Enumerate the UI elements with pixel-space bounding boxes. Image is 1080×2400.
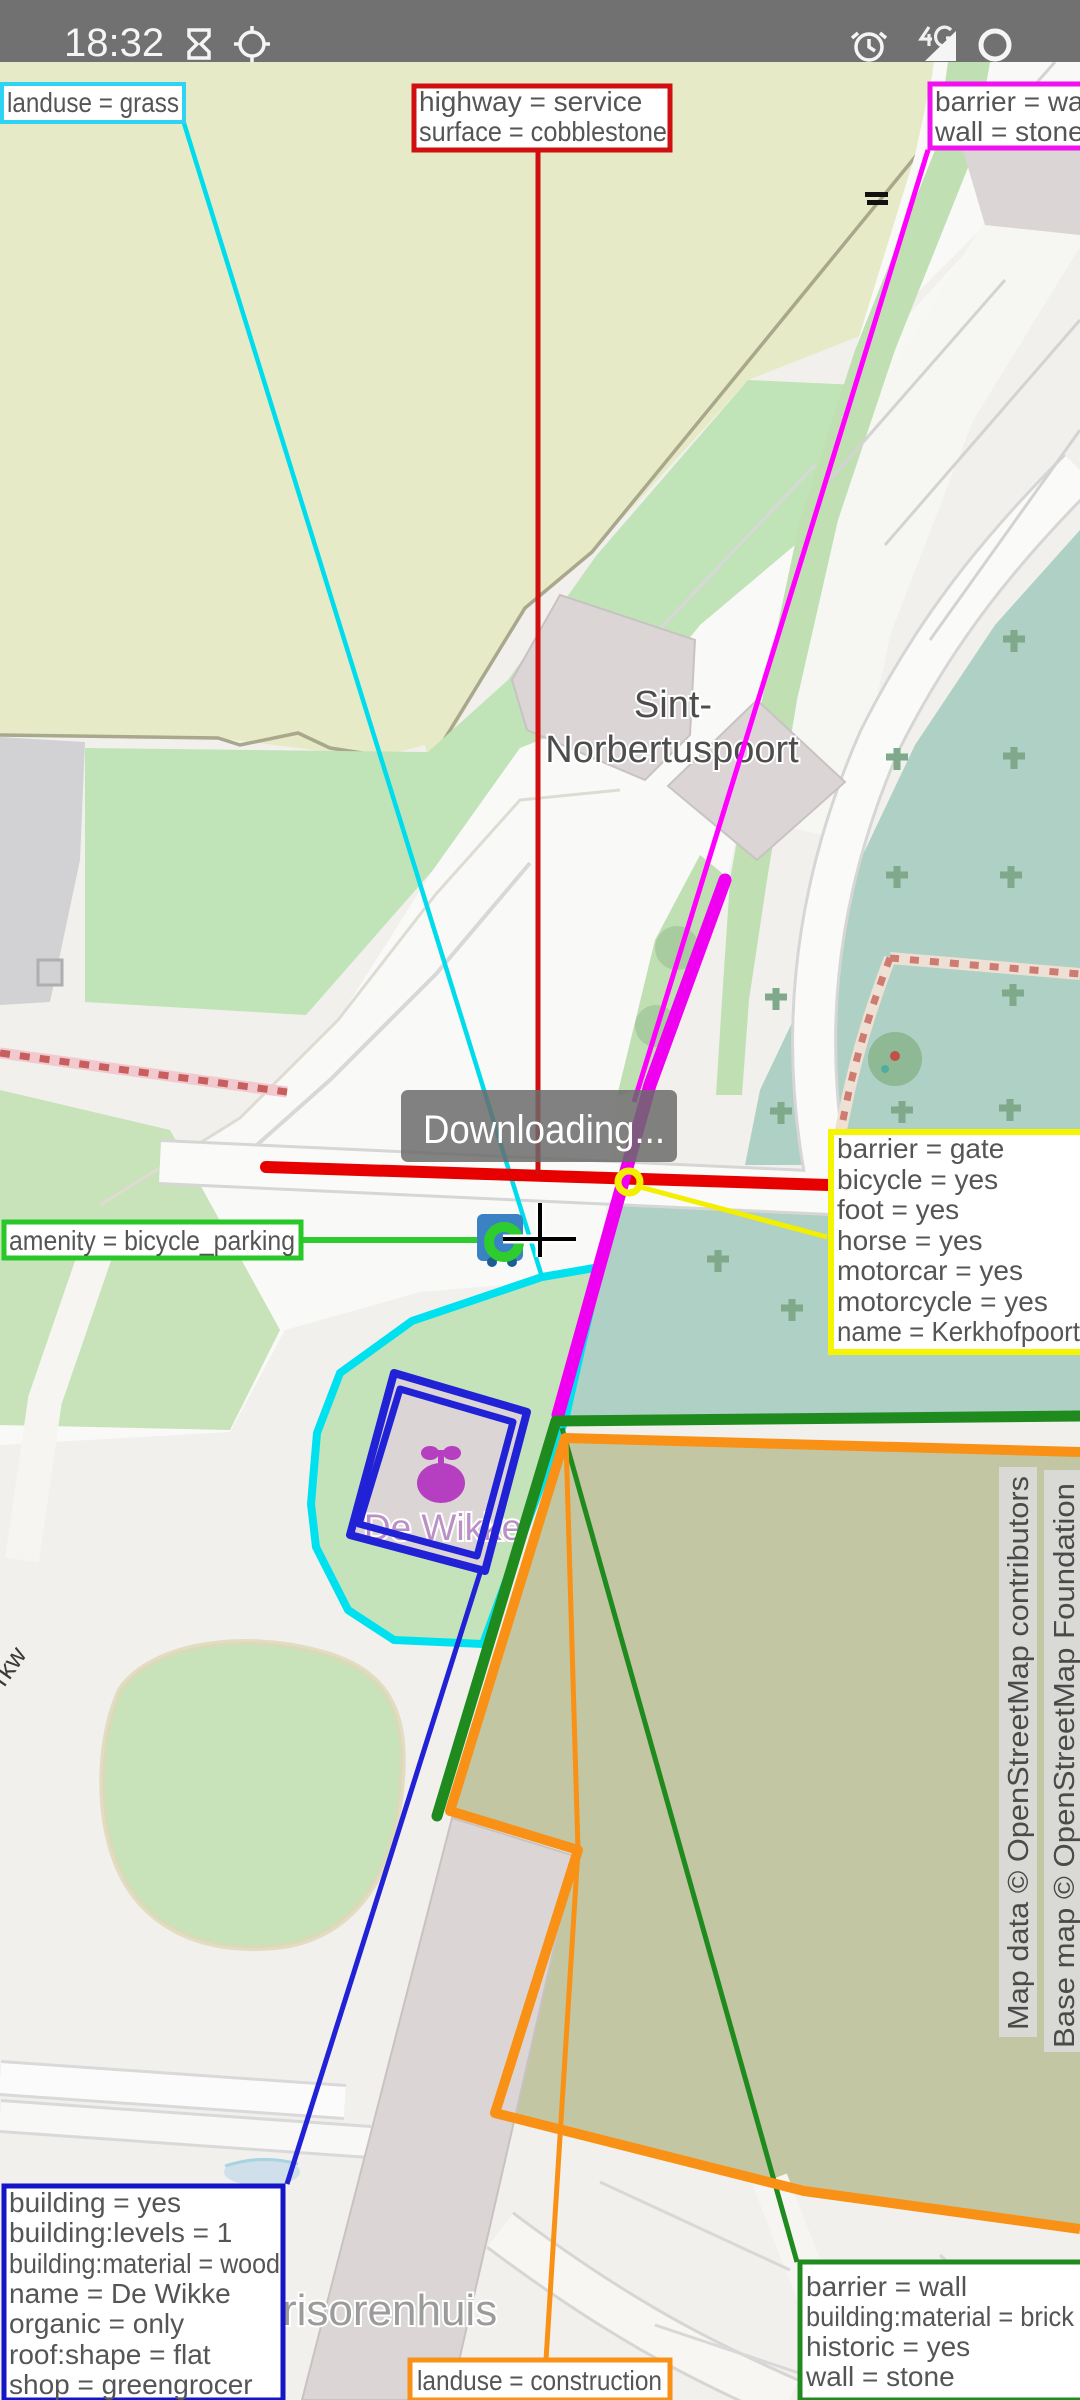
svg-text:wall = stone: wall = stone — [934, 116, 1080, 147]
svg-text:shop = greengrocer: shop = greengrocer — [9, 2369, 253, 2400]
svg-text:name = De Wikke: name = De Wikke — [9, 2278, 231, 2309]
svg-text:horse = yes: horse = yes — [837, 1225, 983, 1256]
svg-text:roof:shape = flat: roof:shape = flat — [9, 2339, 211, 2370]
svg-text:name = Kerkhofpoort: name = Kerkhofpoort — [837, 1316, 1080, 1347]
svg-text:landuse = construction: landuse = construction — [417, 2365, 662, 2396]
svg-text:motorcar = yes: motorcar = yes — [837, 1255, 1023, 1286]
svg-text:Norbertuspoort: Norbertuspoort — [545, 729, 799, 771]
svg-text:highway = service: highway = service — [419, 86, 642, 117]
svg-text:building = yes: building = yes — [9, 2187, 181, 2218]
svg-text:bicycle = yes: bicycle = yes — [837, 1164, 998, 1195]
svg-text:Sint-: Sint- — [634, 684, 712, 726]
svg-text:amenity = bicycle_parking: amenity = bicycle_parking — [9, 1225, 295, 1256]
svg-text:organic = only: organic = only — [9, 2308, 184, 2339]
svg-text:barrier = wall: barrier = wall — [806, 2271, 967, 2302]
svg-text:wall = stone: wall = stone — [805, 2361, 955, 2392]
svg-text:risorenhuis: risorenhuis — [282, 2286, 497, 2335]
svg-text:Base map © OpenStreetMap Found: Base map © OpenStreetMap Foundation — [1049, 1483, 1080, 2048]
svg-text:Map data © OpenStreetMap contr: Map data © OpenStreetMap contributors — [1003, 1476, 1035, 2030]
svg-text:building:material = brick: building:material = brick — [806, 2301, 1075, 2332]
svg-text:foot = yes: foot = yes — [837, 1194, 959, 1225]
svg-text:building:material = wood: building:material = wood — [9, 2248, 280, 2279]
svg-text:barrier = gate: barrier = gate — [837, 1133, 1004, 1164]
svg-text:landuse = grass: landuse = grass — [7, 87, 179, 118]
svg-text:surface = cobblestone: surface = cobblestone — [419, 116, 667, 147]
svg-text:18:32: 18:32 — [64, 21, 164, 65]
svg-text:building:levels = 1: building:levels = 1 — [9, 2217, 232, 2248]
svg-text:barrier = wall: barrier = wall — [935, 86, 1080, 117]
svg-text:historic = yes: historic = yes — [806, 2331, 970, 2362]
svg-text:motorcycle = yes: motorcycle = yes — [837, 1286, 1048, 1317]
svg-text:Downloading...: Downloading... — [423, 1108, 665, 1152]
